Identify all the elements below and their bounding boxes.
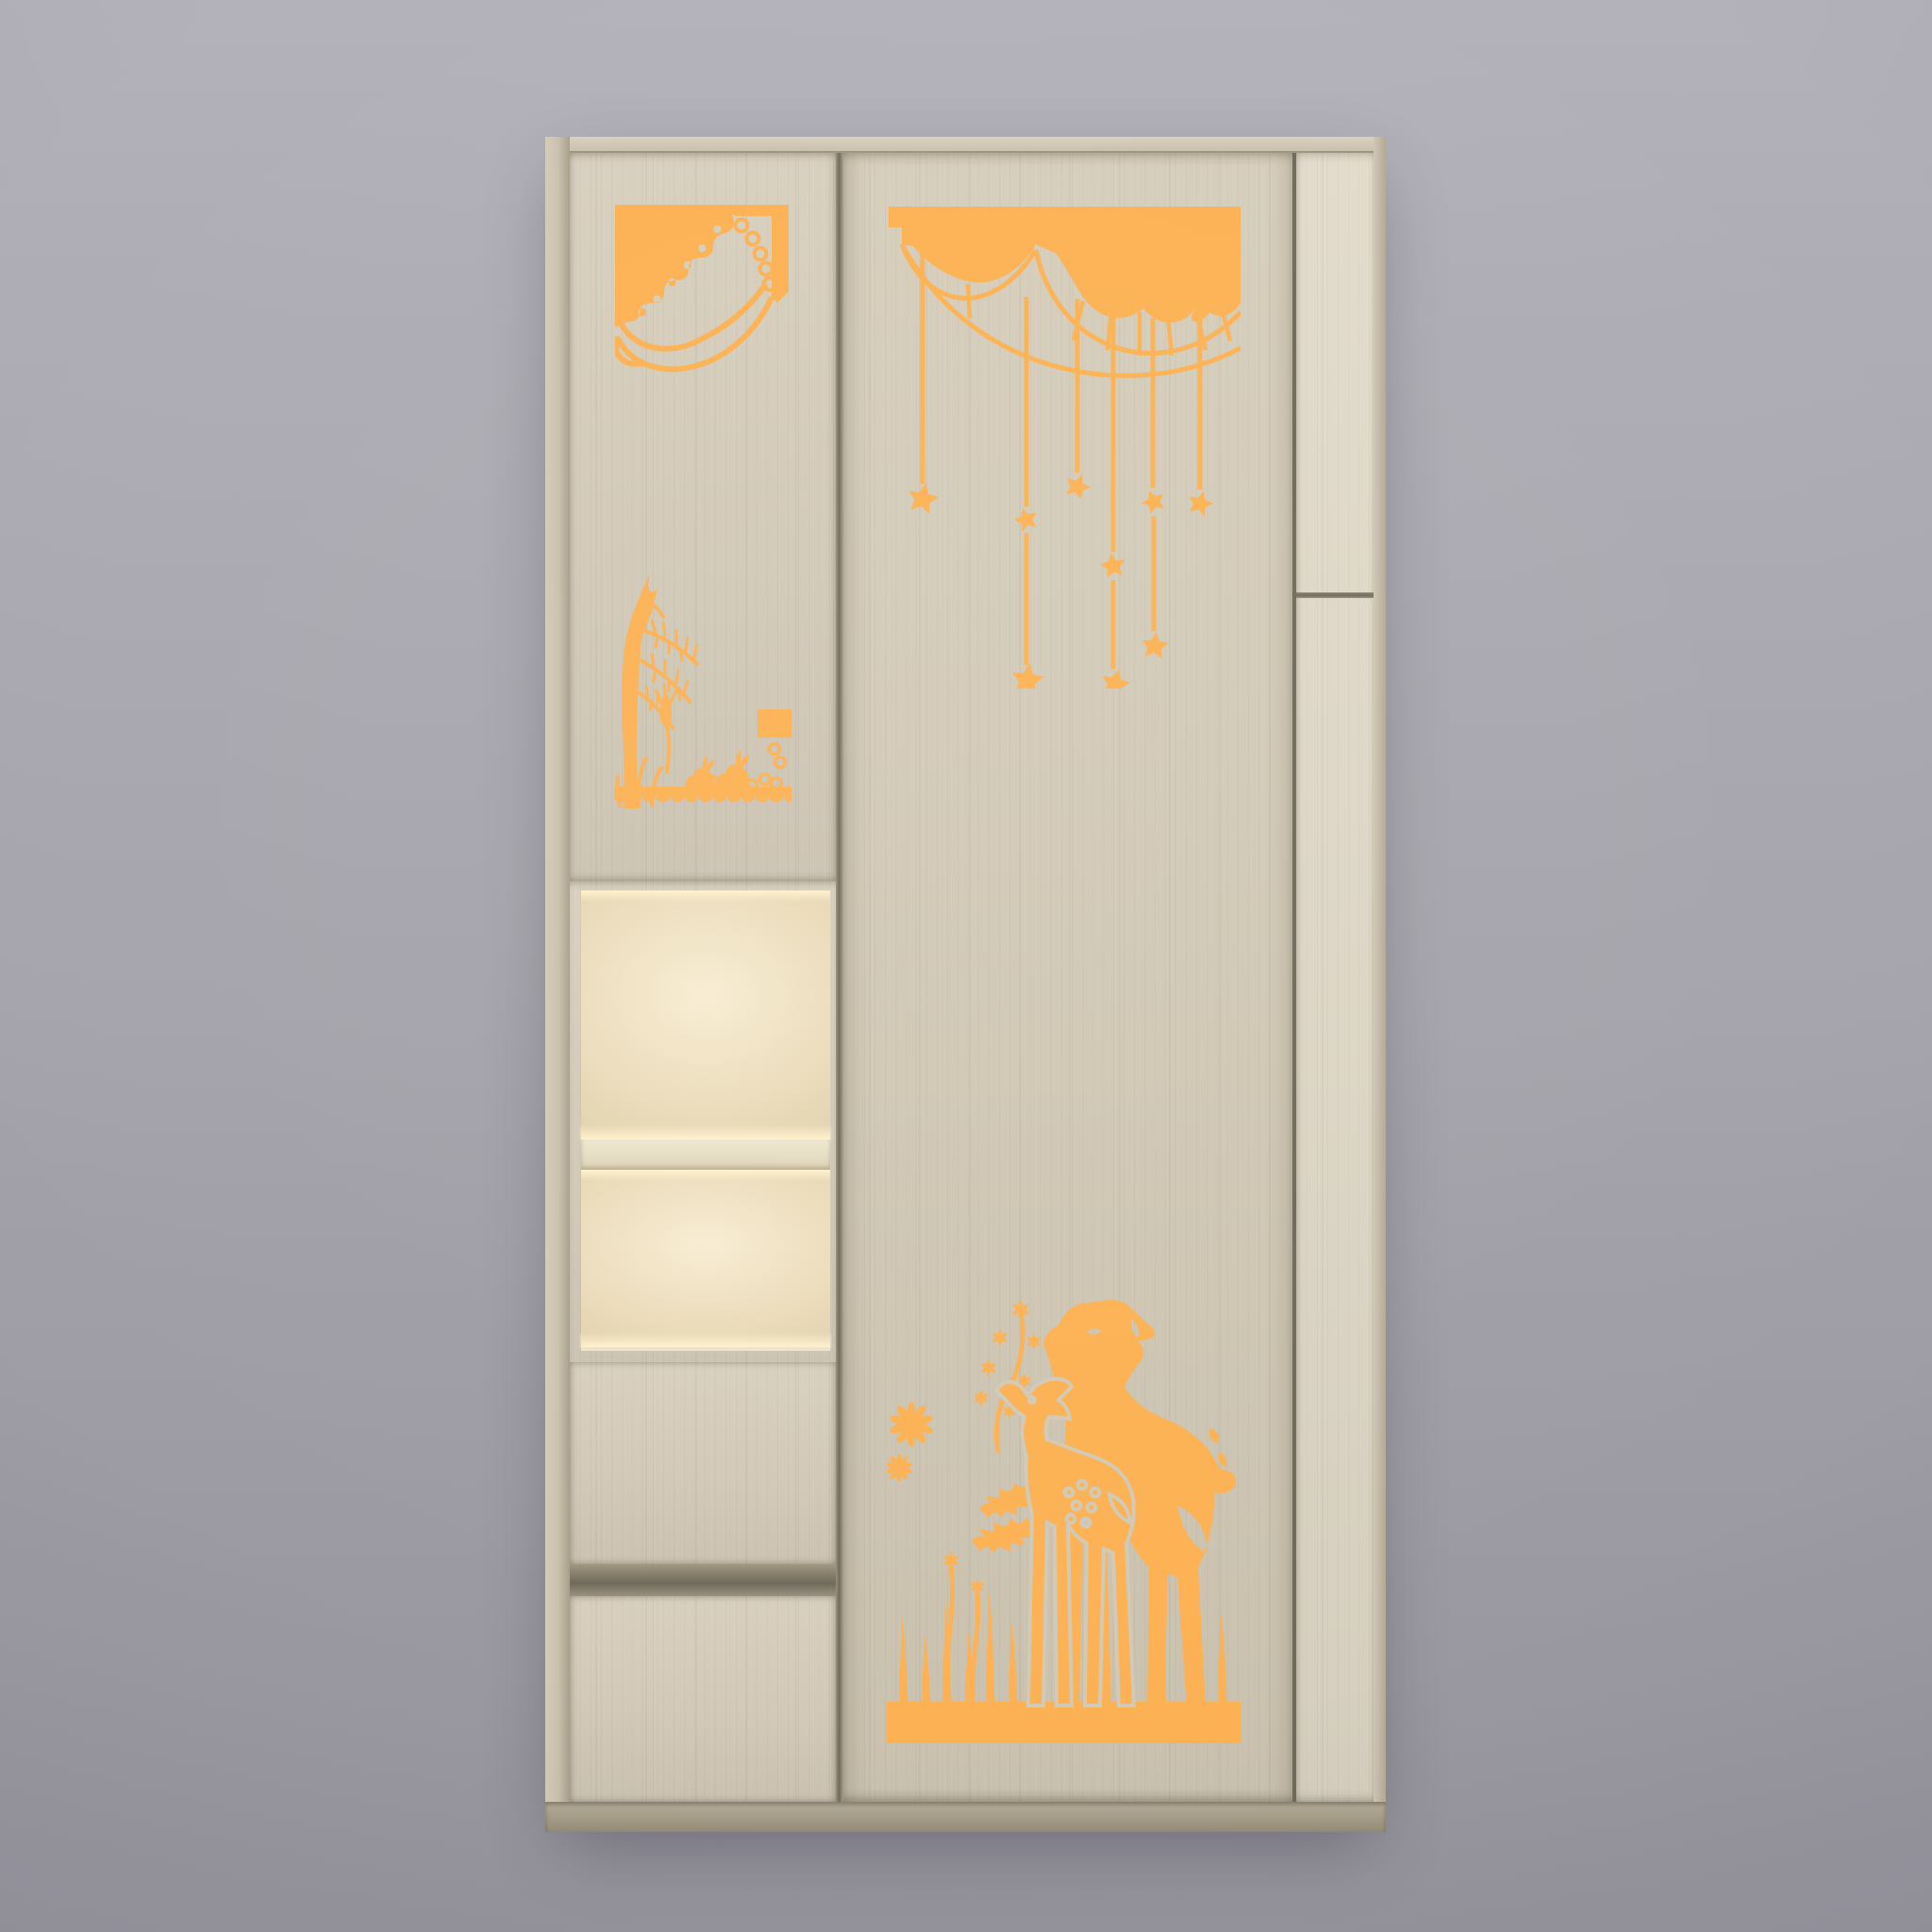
corner-block [758, 709, 791, 738]
valance-band [889, 207, 1241, 323]
niche-compartment-lower [581, 1170, 830, 1347]
niche-compartment-upper [581, 891, 830, 1140]
door-gap-left [836, 153, 843, 1802]
niche-floor [581, 1347, 830, 1351]
render-stage [0, 0, 1932, 1932]
fern-leaflets-1 [652, 621, 697, 660]
side-panel [1296, 153, 1374, 1802]
deer-meadow-decal [887, 1300, 1241, 1743]
sapling-and-rabbits-decal [614, 570, 791, 808]
right-door [843, 153, 1292, 1802]
wardrobe-cabinet [545, 137, 1386, 1832]
lace-canopy-corner-decal [615, 205, 789, 373]
cabinet-top-edge [545, 137, 1386, 153]
lower-drawer [570, 1596, 836, 1802]
lace-ground [614, 787, 791, 803]
left-door [570, 153, 836, 881]
cabinet-right-side-edge [1374, 137, 1386, 1832]
daisy-flower-small [887, 1454, 913, 1482]
display-niche [570, 881, 836, 1362]
upper-drawer [570, 1362, 836, 1564]
drawer-groove [570, 1564, 836, 1596]
niche-opening [581, 891, 830, 1351]
daisy-flower [889, 1402, 934, 1447]
ground-band [887, 1702, 1241, 1743]
star-garland-valance-decal [889, 207, 1241, 689]
garland-stars [905, 470, 1215, 689]
side-panel-groove [1296, 592, 1374, 598]
cabinet-left-side-edge [545, 137, 570, 1832]
cabinet-base [545, 1802, 1386, 1832]
niche-shelf [581, 1140, 830, 1170]
